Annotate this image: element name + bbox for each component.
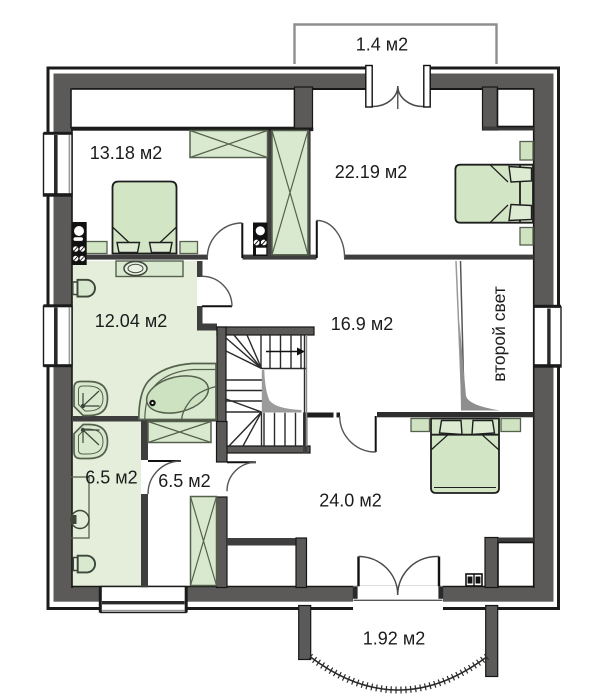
svg-text:22.19 м2: 22.19 м2	[335, 162, 407, 182]
svg-text:24.0 м2: 24.0 м2	[319, 491, 381, 511]
svg-text:13.18 м2: 13.18 м2	[90, 143, 162, 163]
svg-text:1.4 м2: 1.4 м2	[356, 35, 408, 55]
svg-text:6.5 м2: 6.5 м2	[158, 471, 210, 491]
svg-text:1.92 м2: 1.92 м2	[363, 629, 425, 649]
svg-text:16.9 м2: 16.9 м2	[331, 314, 393, 334]
svg-text:12.04 м2: 12.04 м2	[95, 311, 167, 331]
svg-text:второй свет: второй свет	[489, 286, 509, 382]
svg-text:6.5 м2: 6.5 м2	[85, 468, 137, 488]
